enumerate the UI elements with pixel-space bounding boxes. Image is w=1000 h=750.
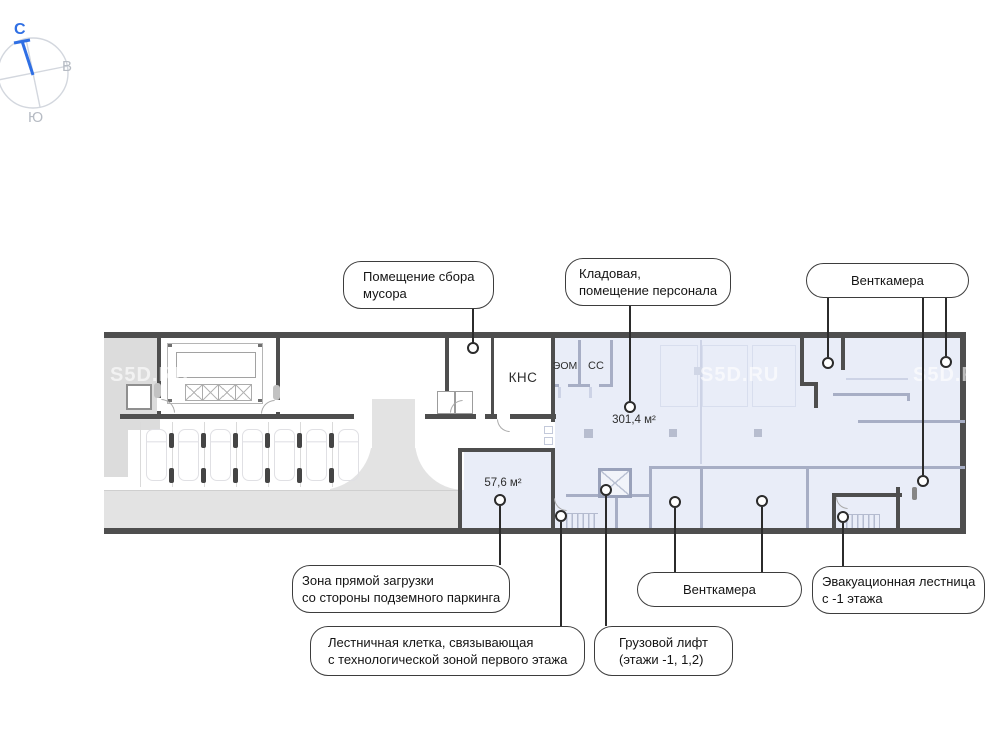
- callout-text: Лестничная клетка, связывающая: [328, 634, 567, 651]
- service-strip-lower: [104, 430, 128, 477]
- wall-segment: [458, 448, 462, 528]
- stair-treads: [566, 513, 598, 528]
- floor-plan-page: С В Ю S5D.RU S5D.RU S5D.RU: [0, 0, 1000, 750]
- corner-mark: [168, 344, 172, 347]
- marker-circle-vent-2: [940, 356, 952, 368]
- door-arc: [497, 419, 510, 432]
- loading-room-fill: [460, 450, 553, 530]
- door-jamb: [273, 385, 280, 400]
- service-hatch: [126, 384, 152, 410]
- door-leaf: [589, 387, 592, 398]
- partition: [700, 466, 703, 528]
- callout-text: помещение персонала: [579, 282, 717, 299]
- duct-outline: [660, 345, 698, 407]
- stall-divider-mark: [265, 468, 270, 483]
- watermark-text: S5D.RU: [913, 364, 992, 387]
- brace-cell: [202, 385, 219, 400]
- marker-circle-loading: [494, 494, 506, 506]
- stall-divider-mark: [233, 433, 238, 448]
- stall-divider-mark: [169, 433, 174, 448]
- road-band: [104, 490, 460, 530]
- watermark-text: S5D.RU: [700, 364, 779, 387]
- stall-divider-mark: [329, 468, 334, 483]
- callout-text: Помещение сбора: [363, 268, 474, 285]
- leader-line: [560, 522, 562, 626]
- area-label-main: 301,4 м²: [603, 414, 665, 426]
- parked-car: [178, 429, 199, 481]
- callout-text: Грузовой лифт: [619, 634, 708, 651]
- parked-car: [306, 429, 327, 481]
- partition-faint: [846, 378, 908, 380]
- callout-text: (этажи -1, 1,2): [619, 651, 708, 668]
- partition: [907, 393, 910, 401]
- callout-text: со стороны подземного паркинга: [302, 589, 500, 606]
- stall-divider-mark: [265, 433, 270, 448]
- marker-circle-evac: [837, 511, 849, 523]
- wall-top: [104, 332, 966, 338]
- callout-trash-room: Помещение сбора мусора: [343, 261, 494, 309]
- brace-cell: [218, 385, 235, 400]
- door-leaf: [544, 426, 553, 434]
- corner-mark: [258, 344, 262, 347]
- stall-divider-mark: [297, 468, 302, 483]
- marker-circle-vent-3: [917, 475, 929, 487]
- stall-divider-mark: [201, 468, 206, 483]
- stall-divider-mark: [297, 433, 302, 448]
- wall-segment: [800, 338, 804, 384]
- marker-circle-trash: [467, 342, 479, 354]
- room-label-ss: СС: [581, 360, 611, 372]
- door-arc: [261, 400, 275, 414]
- wall-bottom: [104, 528, 966, 534]
- equipment-box: [754, 429, 762, 437]
- stall-divider-mark: [201, 433, 206, 448]
- door-opening: [276, 400, 280, 412]
- callout-text: Венткамера: [683, 581, 756, 598]
- wall-pier: [912, 487, 917, 500]
- marker-circle-storage: [624, 401, 636, 413]
- marker-circle-vent-1: [822, 357, 834, 369]
- parked-car: [274, 429, 295, 481]
- parked-car: [242, 429, 263, 481]
- leader-line: [827, 297, 829, 357]
- callout-stair-core: Лестничная клетка, связывающая с техноло…: [310, 626, 585, 676]
- watermark-text: S5D.RU: [110, 364, 189, 387]
- driveway-vertical: [372, 399, 415, 491]
- leader-line: [842, 523, 844, 566]
- callout-storage-staff: Кладовая, помещение персонала: [565, 258, 731, 306]
- partition: [615, 497, 618, 528]
- door-leaf: [544, 437, 553, 445]
- leader-line: [605, 496, 607, 626]
- partition: [858, 420, 965, 423]
- partition-faint: [700, 340, 702, 464]
- leader-line: [945, 297, 947, 356]
- callout-cargo-lift: Грузовой лифт (этажи -1, 1,2): [594, 626, 733, 676]
- door-leaf: [558, 387, 561, 398]
- stall-divider-mark: [233, 468, 238, 483]
- compass-label-east: В: [62, 58, 72, 75]
- marker-circle-vent-b2: [756, 495, 768, 507]
- callout-text: Венткамера: [851, 272, 924, 289]
- room-label-eom: ЭОМ: [550, 360, 580, 372]
- leader-line: [922, 297, 924, 475]
- callout-text: с -1 этажа: [822, 590, 975, 607]
- door-opening: [476, 414, 485, 419]
- compass-label-south: Ю: [28, 109, 43, 126]
- leader-line: [674, 508, 676, 572]
- callout-text: Эвакуационная лестница: [822, 573, 975, 590]
- callout-text: мусора: [363, 285, 474, 302]
- parked-car: [338, 429, 359, 481]
- callout-text: с технологической зоной первого этажа: [328, 651, 567, 668]
- partition: [806, 466, 809, 528]
- marker-circle-lift: [600, 484, 612, 496]
- wall-segment: [814, 384, 818, 408]
- compass-needle-bar: [14, 40, 30, 43]
- equipment-box: [669, 429, 677, 437]
- parked-car: [146, 429, 167, 481]
- brace-cell: [235, 385, 252, 400]
- partition: [649, 466, 652, 528]
- stair-enclosure-wall: [896, 487, 900, 528]
- brace-cell: [186, 385, 202, 400]
- partition: [566, 494, 600, 497]
- marker-circle-vent-b1: [669, 496, 681, 508]
- wall-segment: [458, 448, 555, 452]
- wall-segment: [120, 414, 354, 419]
- corner-mark: [258, 399, 262, 402]
- stall-divider-mark: [329, 433, 334, 448]
- equipment-box: [584, 429, 593, 438]
- stair-treads: [846, 514, 880, 528]
- leader-line: [761, 507, 763, 572]
- callout-vent-top: Венткамера: [806, 263, 969, 298]
- parked-car: [210, 429, 231, 481]
- callout-loading-zone: Зона прямой загрузки со стороны подземно…: [292, 565, 510, 613]
- partition: [631, 494, 651, 497]
- marker-circle-stair: [555, 510, 567, 522]
- room-label-kns: КНС: [495, 370, 551, 385]
- leader-line: [499, 506, 501, 565]
- equipment-braced-row: [185, 384, 252, 401]
- callout-text: Зона прямой загрузки: [302, 572, 500, 589]
- callout-text: Кладовая,: [579, 265, 717, 282]
- callout-evac-stair: Эвакуационная лестница с -1 этажа: [812, 566, 985, 614]
- wall-segment: [841, 338, 845, 370]
- wall-segment: [491, 338, 494, 419]
- stall-divider-mark: [169, 468, 174, 483]
- area-label-loading: 57,6 м²: [473, 477, 533, 489]
- compass-rose: С В Ю: [0, 18, 110, 130]
- callout-vent-bottom: Венткамера: [637, 572, 802, 607]
- partition: [833, 393, 910, 396]
- leader-line: [629, 298, 631, 401]
- compass-label-north: С: [14, 21, 26, 38]
- wall-segment: [551, 338, 555, 422]
